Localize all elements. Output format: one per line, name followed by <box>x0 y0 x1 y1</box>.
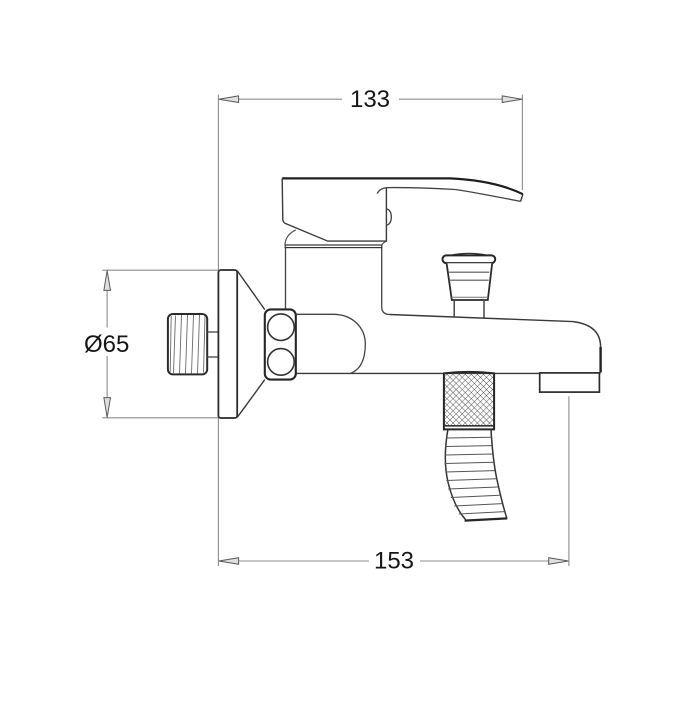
svg-text:133: 133 <box>350 86 390 113</box>
svg-text:153: 153 <box>374 548 414 575</box>
svg-text:Ø65: Ø65 <box>84 331 129 358</box>
